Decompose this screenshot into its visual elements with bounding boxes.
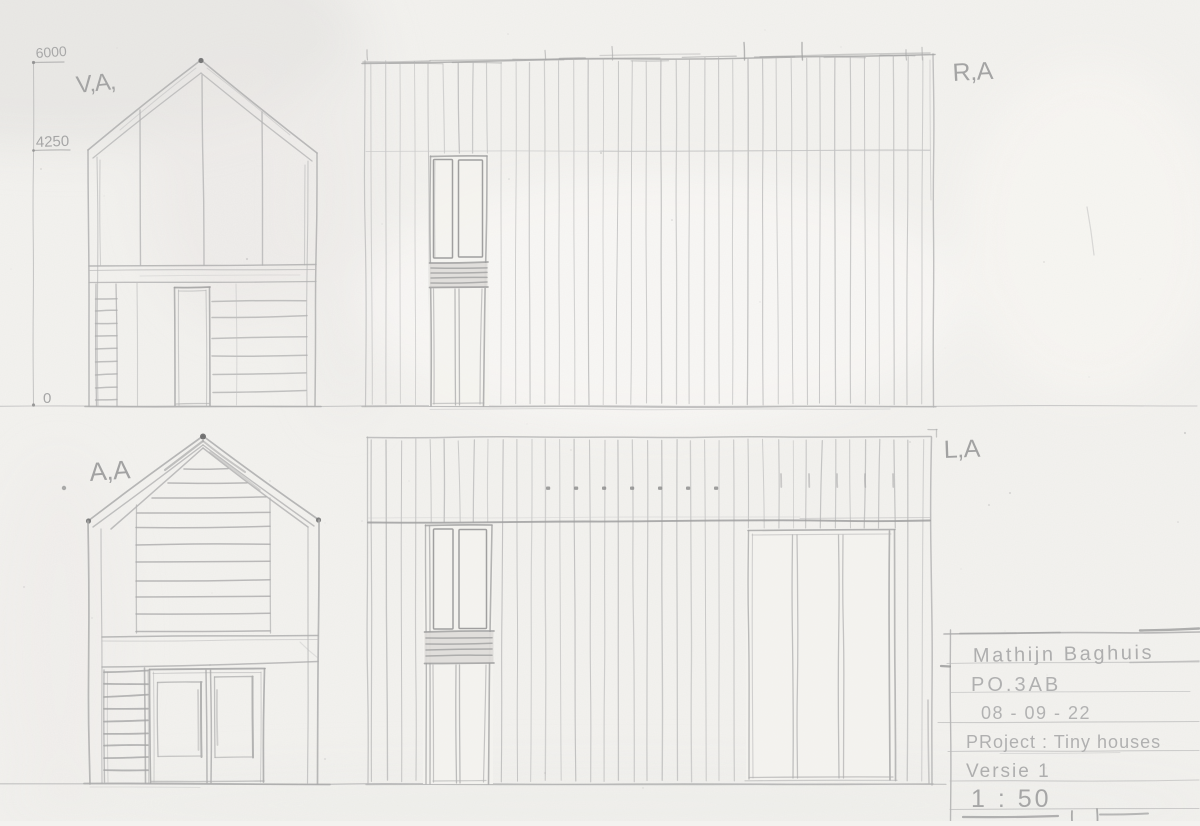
svg-text:6000: 6000 — [35, 43, 67, 61]
svg-text:Mathijn Baghuis: Mathijn Baghuis — [973, 642, 1155, 667]
svg-text:08 - 09 - 22: 08 - 09 - 22 — [981, 703, 1091, 723]
svg-text:1 : 50: 1 : 50 — [971, 785, 1052, 813]
svg-text:R,A: R,A — [952, 57, 994, 87]
svg-text:V,A,: V,A, — [75, 68, 117, 99]
svg-text:A,A: A,A — [88, 454, 132, 487]
svg-text:0: 0 — [43, 390, 51, 407]
svg-text:L,A: L,A — [943, 435, 981, 464]
svg-text:PRoject : Tiny houses: PRoject : Tiny houses — [966, 732, 1161, 752]
svg-text:Versie 1: Versie 1 — [966, 761, 1051, 782]
svg-text:4250: 4250 — [36, 133, 70, 151]
svg-text:PO.3AB: PO.3AB — [971, 674, 1061, 696]
